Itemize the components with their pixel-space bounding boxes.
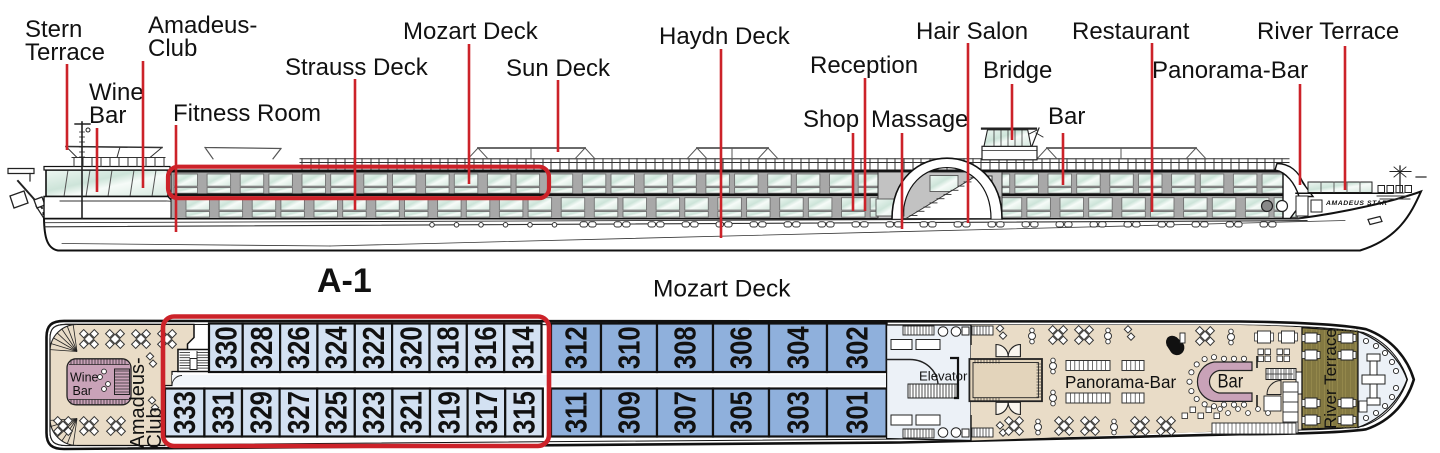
svg-text:Elevator: Elevator xyxy=(919,369,968,384)
svg-text:A-1: A-1 xyxy=(317,262,372,300)
svg-text:Bar: Bar xyxy=(89,102,126,129)
svg-text:322: 322 xyxy=(357,326,391,369)
svg-text:Terrace: Terrace xyxy=(25,39,105,66)
svg-text:Mozart Deck: Mozart Deck xyxy=(403,18,539,45)
svg-text:Haydn Deck: Haydn Deck xyxy=(659,23,791,50)
svg-text:319: 319 xyxy=(432,391,466,434)
svg-text:Bridge: Bridge xyxy=(983,57,1052,84)
svg-text:Strauss Deck: Strauss Deck xyxy=(285,54,429,81)
svg-text:317: 317 xyxy=(470,391,504,434)
svg-text:305: 305 xyxy=(724,391,758,434)
svg-text:307: 307 xyxy=(668,391,702,434)
svg-text:Sun Deck: Sun Deck xyxy=(506,55,611,82)
svg-text:Bar: Bar xyxy=(1048,103,1085,130)
svg-text:331: 331 xyxy=(207,391,241,434)
svg-text:333: 333 xyxy=(168,391,202,434)
svg-text:308: 308 xyxy=(668,326,702,369)
svg-text:325: 325 xyxy=(319,391,353,434)
svg-text:Massage: Massage xyxy=(871,106,968,133)
svg-text:330: 330 xyxy=(209,326,243,369)
svg-text:Fitness Room: Fitness Room xyxy=(173,100,321,127)
svg-text:302: 302 xyxy=(840,326,874,369)
svg-text:321: 321 xyxy=(395,391,429,434)
svg-text:Bar: Bar xyxy=(73,384,92,398)
svg-text:River Terrace: River Terrace xyxy=(1257,18,1399,45)
svg-text:304: 304 xyxy=(781,326,815,369)
svg-text:316: 316 xyxy=(469,326,503,369)
svg-text:306: 306 xyxy=(724,326,758,369)
svg-text:Club: Club xyxy=(148,35,197,62)
svg-text:309: 309 xyxy=(612,391,646,434)
svg-text:Restaurant: Restaurant xyxy=(1072,18,1190,45)
svg-text:314: 314 xyxy=(506,326,540,369)
svg-text:328: 328 xyxy=(245,326,279,369)
svg-text:303: 303 xyxy=(781,391,815,434)
svg-text:Panorama-Bar: Panorama-Bar xyxy=(1065,372,1176,393)
svg-text:326: 326 xyxy=(282,326,316,369)
svg-text:AMADEUS STAR: AMADEUS STAR xyxy=(1325,200,1387,207)
svg-text:Bar: Bar xyxy=(1218,370,1244,392)
svg-text:Hair Salon: Hair Salon xyxy=(916,18,1028,45)
svg-text:323: 323 xyxy=(357,391,391,434)
svg-text:Wine: Wine xyxy=(70,371,99,385)
svg-text:311: 311 xyxy=(559,392,593,433)
svg-text:301: 301 xyxy=(840,391,874,434)
svg-text:312: 312 xyxy=(559,326,593,369)
svg-text:315: 315 xyxy=(507,391,541,434)
svg-text:310: 310 xyxy=(612,326,646,369)
svg-text:Reception: Reception xyxy=(810,52,918,79)
svg-text:320: 320 xyxy=(394,326,428,369)
svg-text:324: 324 xyxy=(320,326,354,369)
svg-text:River Terrace: River Terrace xyxy=(1321,328,1340,429)
svg-text:327: 327 xyxy=(282,391,316,434)
svg-text:318: 318 xyxy=(432,326,466,369)
svg-text:Mozart Deck: Mozart Deck xyxy=(653,276,791,303)
svg-text:Panorama-Bar: Panorama-Bar xyxy=(1152,57,1308,84)
svg-text:329: 329 xyxy=(244,391,278,434)
svg-text:Shop: Shop xyxy=(803,106,859,133)
